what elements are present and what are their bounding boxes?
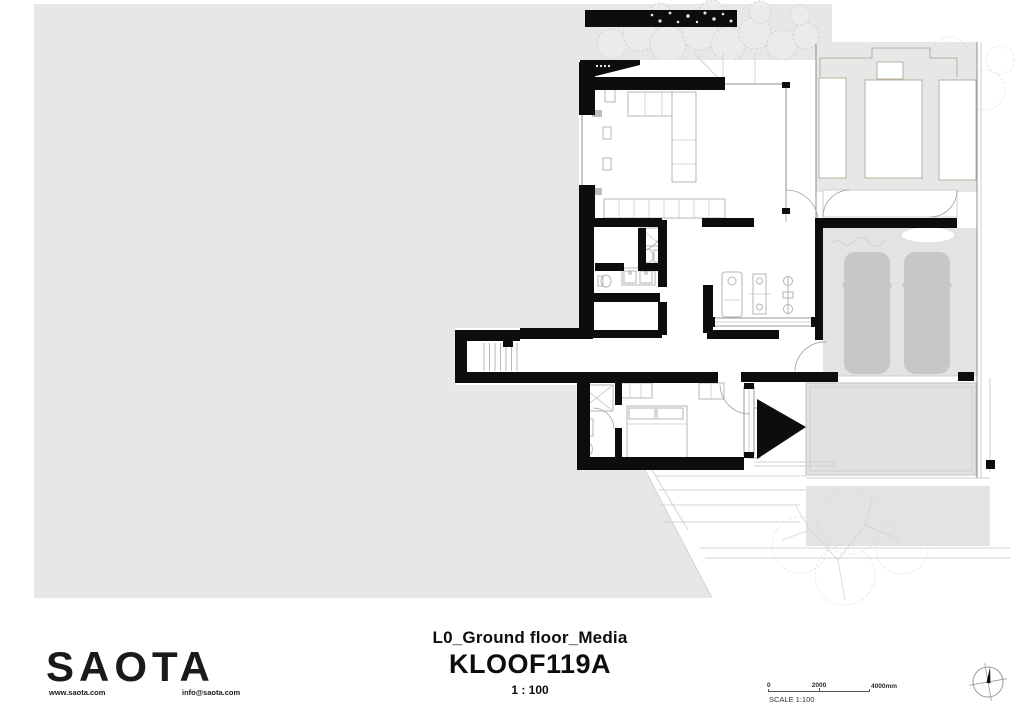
scale-tick-end: 4000mm: [871, 683, 897, 690]
saota-logo: SAOTA www.saota.com info@saota.com: [46, 646, 241, 698]
cabinet-row: [604, 199, 725, 218]
title-block: L0_Ground floor_Media KLOOF119A 1 : 100: [433, 628, 628, 697]
wall-unit-1: [603, 127, 611, 139]
neighbor-room-notch: [877, 62, 903, 79]
pool: [806, 378, 990, 478]
garage-driveway: [823, 190, 977, 376]
car-1: [842, 252, 892, 374]
site-field-left: [34, 4, 580, 598]
bedroom-window-east: [744, 383, 754, 458]
drawing-title: L0_Ground floor_Media: [433, 628, 628, 648]
garage-walkway: [823, 190, 957, 217]
garage-wall: [818, 218, 957, 228]
scale-bar-line: [768, 691, 870, 692]
neighbor-room-1: [819, 78, 846, 178]
project-code: KLOOF119A: [433, 649, 628, 680]
logo-contacts: www.saota.com info@saota.com: [46, 688, 241, 698]
media-room-north-wall: [592, 77, 725, 90]
drawing-sheet: L0_Ground floor_Media KLOOF119A 1 : 100 …: [0, 0, 1024, 724]
logo-wordmark: SAOTA: [46, 646, 241, 688]
floor-plan-drawing: [0, 0, 1024, 724]
wall-unit-2: [603, 158, 611, 170]
scale-caption: SCALE 1:100: [769, 695, 814, 704]
lower-terrace: [806, 486, 990, 546]
logo-email: info@saota.com: [182, 688, 240, 697]
logo-website: www.saota.com: [49, 688, 105, 697]
shrub-oval: [901, 227, 955, 243]
scale-bar: 0 2000 4000mm SCALE 1:100: [768, 682, 870, 708]
scale-bar-mid-tick: [819, 688, 820, 691]
pool-water: [806, 383, 976, 475]
neighbor-room-3: [939, 80, 976, 180]
gym-window-south: [709, 317, 817, 327]
bedroom-south-wall: [577, 457, 744, 470]
compass-needle: [986, 667, 992, 683]
scale-text: 1 : 100: [433, 683, 628, 697]
site-field-bottom: [580, 470, 712, 598]
north-arrow: [966, 660, 1010, 704]
west-wall: [579, 218, 594, 335]
side-table: [605, 88, 615, 102]
corridor-south-wall: [455, 372, 718, 383]
car-2: [902, 252, 952, 374]
bed: [627, 406, 687, 458]
scale-tick-start: 0: [767, 682, 771, 689]
neighbor-room-2: [865, 80, 922, 178]
